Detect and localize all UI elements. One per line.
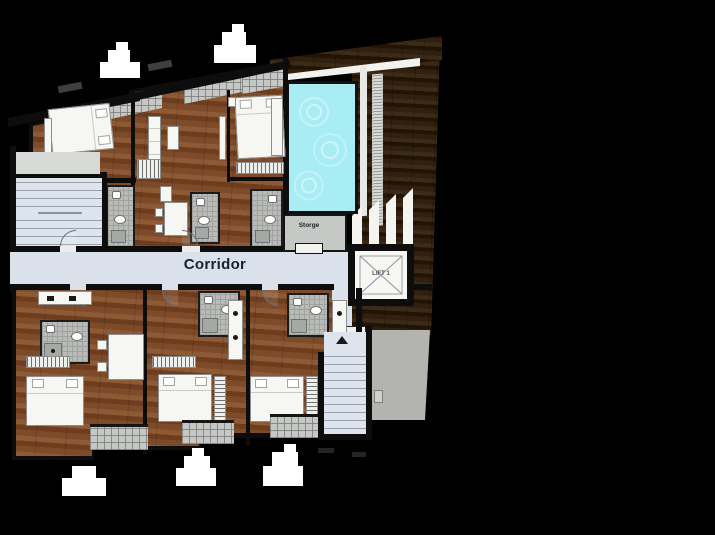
wardrobe (26, 356, 70, 368)
storage-label: Storge (287, 222, 331, 229)
corridor-label: Corridor (150, 256, 280, 273)
wall (318, 434, 372, 440)
stair-divider (38, 212, 82, 214)
balcony (182, 420, 234, 444)
tree-base (176, 468, 216, 486)
dining-table (108, 334, 144, 380)
pillow (95, 108, 108, 118)
shower (195, 227, 209, 239)
terrace (372, 330, 430, 420)
sink-icon (337, 311, 342, 316)
kitchen-counter (228, 300, 243, 360)
wall (366, 326, 372, 440)
louver-fin (403, 188, 413, 250)
wardrobe (271, 98, 283, 156)
tree-icon (100, 42, 144, 80)
note-mark (318, 448, 334, 453)
chair (155, 208, 163, 217)
shower (111, 230, 126, 243)
stove-icon (233, 335, 238, 340)
bathroom (287, 293, 329, 337)
stairwell-right (324, 356, 366, 434)
tv-console (219, 116, 226, 160)
kitchen-counter (160, 186, 172, 202)
lift-label: LIFT 1 (355, 271, 407, 277)
tree-base (100, 62, 140, 78)
chair (97, 362, 107, 372)
wall (227, 177, 287, 181)
tree-base (263, 466, 303, 486)
pillow (163, 377, 175, 386)
basin-icon (112, 191, 121, 199)
tree-icon (214, 24, 258, 64)
chair (155, 224, 163, 233)
coffee-table (167, 126, 179, 150)
roof-eave (148, 60, 173, 71)
pillow (287, 379, 299, 388)
wall (102, 178, 107, 254)
toilet-icon (71, 332, 83, 341)
kitchen-counter (38, 291, 92, 305)
shower (255, 230, 270, 243)
stair-arrow-icon (336, 336, 348, 344)
toilet-icon (114, 215, 126, 224)
balcony (90, 424, 148, 450)
nightstand (228, 97, 236, 107)
shower (202, 318, 218, 333)
stair-treads-icon (16, 220, 102, 246)
lift-cab: LIFT 1 (355, 251, 407, 299)
pillow (66, 379, 78, 388)
pillow (98, 135, 111, 145)
wardrobe (152, 356, 196, 368)
basin-icon (268, 195, 277, 203)
pillow (32, 379, 44, 388)
bed (158, 374, 212, 422)
wardrobe (236, 162, 284, 174)
stair-treads-icon (16, 182, 102, 208)
basin-icon (204, 296, 213, 304)
swimming-pool (286, 81, 358, 214)
pool-side-slat (360, 66, 367, 216)
tree-base (62, 478, 106, 496)
blanket-line (159, 390, 211, 391)
stair-lobby (16, 152, 100, 174)
bed (48, 103, 114, 155)
floor-plan: Corridor Storge LIFT 1 (0, 0, 715, 535)
chair (97, 340, 107, 350)
bathroom (250, 189, 283, 248)
blanket-line (251, 392, 303, 393)
wall (246, 288, 250, 446)
roof-eave (58, 82, 83, 93)
sink-icon (233, 311, 238, 316)
wardrobe (214, 376, 226, 422)
tree-icon (62, 466, 108, 498)
toilet-icon (264, 215, 276, 224)
drain-icon (51, 349, 55, 353)
note-mark (352, 452, 366, 457)
pillow (240, 99, 252, 109)
sink-icon (69, 296, 76, 301)
basin-icon (196, 198, 205, 206)
toilet-icon (198, 216, 210, 225)
pillow (195, 377, 207, 386)
basin-icon (46, 325, 55, 333)
fridge (137, 159, 161, 179)
tree-base (214, 45, 256, 63)
basin-icon (293, 298, 302, 306)
pillow (255, 379, 267, 388)
bed (26, 376, 84, 426)
door-gap (60, 246, 76, 252)
blanket-line (27, 393, 83, 394)
tree-icon (263, 444, 305, 486)
stove-icon (47, 296, 54, 301)
bathroom (106, 185, 135, 248)
door-gap (182, 246, 200, 252)
tree-icon (176, 448, 218, 486)
toilet-icon (310, 306, 322, 315)
storage-door (295, 243, 323, 254)
shower (291, 319, 307, 333)
terrace-door (374, 390, 383, 403)
